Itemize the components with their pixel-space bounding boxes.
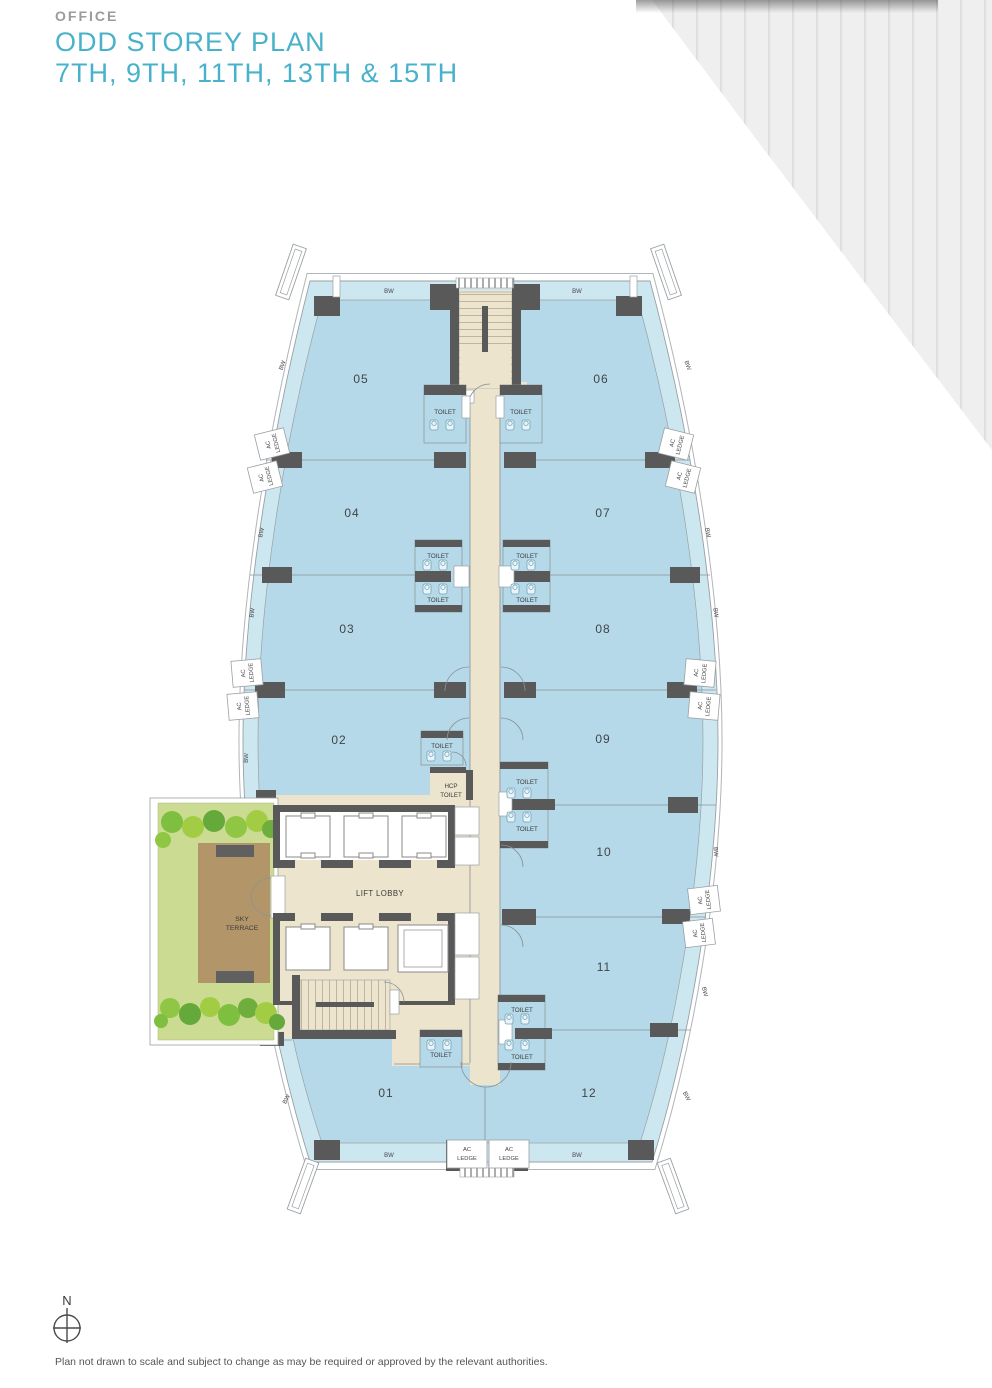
svg-text:BW: BW bbox=[681, 1091, 691, 1103]
fin-top-right bbox=[651, 244, 682, 300]
svg-text:BW: BW bbox=[700, 986, 708, 997]
svg-text:TOILET: TOILET bbox=[516, 826, 538, 833]
category-label: OFFICE bbox=[55, 8, 458, 24]
svg-text:BW: BW bbox=[711, 608, 718, 619]
svg-text:BW: BW bbox=[384, 1153, 394, 1159]
unit-12-label: 12 bbox=[581, 1086, 596, 1100]
floor-plan: AC LEDGE AC LEDGE AC LEDGE AC LEDGE AC L… bbox=[150, 244, 722, 1214]
page-header: OFFICE ODD STOREY PLAN 7TH, 9TH, 11TH, 1… bbox=[55, 8, 458, 89]
unit-03-label: 03 bbox=[339, 622, 354, 636]
svg-text:TOILET: TOILET bbox=[440, 792, 462, 799]
lift-lobby-label: LIFT LOBBY bbox=[356, 889, 404, 898]
fin-bottom-left bbox=[287, 1158, 319, 1214]
fin-bottom-right bbox=[657, 1158, 689, 1214]
lift-bank-upper bbox=[273, 805, 479, 868]
svg-text:AC: AC bbox=[505, 1147, 513, 1153]
floor-plan-canvas: AC LEDGE AC LEDGE AC LEDGE AC LEDGE AC L… bbox=[0, 0, 992, 1388]
terrace-bench-top bbox=[216, 845, 254, 857]
svg-text:AC: AC bbox=[693, 929, 700, 938]
svg-text:BW: BW bbox=[572, 1153, 582, 1159]
svg-text:TOILET: TOILET bbox=[511, 1007, 533, 1014]
unit-06-label: 06 bbox=[593, 372, 608, 386]
svg-text:BW: BW bbox=[244, 753, 250, 763]
hcp-toilet-label: HCP bbox=[444, 783, 457, 790]
unit-10-label: 10 bbox=[596, 845, 611, 859]
north-compass: N bbox=[53, 1293, 81, 1343]
unit-08-label: 08 bbox=[595, 622, 610, 636]
svg-text:TOILET: TOILET bbox=[516, 553, 538, 560]
unit-07-label: 07 bbox=[595, 506, 610, 520]
svg-text:TOILET: TOILET bbox=[516, 597, 538, 604]
corner-stripe-decoration bbox=[636, 0, 992, 450]
svg-text:BW: BW bbox=[249, 607, 256, 618]
bottom-stair bbox=[292, 975, 404, 1039]
svg-text:TOILET: TOILET bbox=[427, 597, 449, 604]
unit-05-label: 05 bbox=[353, 372, 368, 386]
svg-text:BW: BW bbox=[682, 360, 691, 371]
svg-text:AC: AC bbox=[694, 668, 701, 677]
terrace-deck bbox=[198, 843, 270, 983]
unit-11-label: 11 bbox=[597, 960, 611, 974]
svg-text:LEDGE: LEDGE bbox=[499, 1156, 519, 1162]
terrace-door-gap bbox=[271, 876, 285, 918]
unit-02-label: 02 bbox=[331, 733, 346, 747]
svg-text:LEDGE: LEDGE bbox=[457, 1156, 477, 1162]
svg-text:BW: BW bbox=[572, 289, 582, 295]
svg-text:AC: AC bbox=[241, 669, 248, 678]
top-hatch-strip bbox=[456, 278, 514, 288]
svg-text:AC: AC bbox=[698, 701, 705, 710]
svg-text:BW: BW bbox=[712, 847, 719, 857]
terrace-bench-bottom bbox=[216, 971, 254, 983]
north-label: N bbox=[62, 1293, 71, 1308]
svg-text:TERRACE: TERRACE bbox=[226, 925, 259, 932]
unit-01-label: 01 bbox=[378, 1086, 393, 1100]
svg-text:TOILET: TOILET bbox=[427, 553, 449, 560]
bw-label: BW bbox=[384, 289, 394, 295]
sky-terrace-label: SKY bbox=[235, 916, 249, 923]
page-subtitle: 7TH, 9TH, 11TH, 13TH & 15TH bbox=[55, 58, 458, 89]
page-title: ODD STOREY PLAN bbox=[55, 27, 458, 58]
svg-text:TOILET: TOILET bbox=[511, 1054, 533, 1061]
svg-text:TOILET: TOILET bbox=[431, 743, 453, 750]
unit-04-label: 04 bbox=[344, 506, 359, 520]
svg-text:AC: AC bbox=[237, 702, 244, 711]
toilet-label: TOILET bbox=[434, 409, 456, 416]
brochure-page: OFFICE ODD STOREY PLAN 7TH, 9TH, 11TH, 1… bbox=[0, 0, 992, 1388]
unit-09-label: 09 bbox=[595, 732, 610, 746]
svg-text:TOILET: TOILET bbox=[516, 779, 538, 786]
fin-top-left bbox=[276, 244, 307, 300]
svg-text:TOILET: TOILET bbox=[510, 409, 532, 416]
svg-text:TOILET: TOILET bbox=[430, 1052, 452, 1059]
disclaimer-text: Plan not drawn to scale and subject to c… bbox=[55, 1356, 548, 1368]
svg-text:BW: BW bbox=[703, 527, 711, 538]
sky-terrace bbox=[150, 798, 285, 1045]
svg-text:AC: AC bbox=[698, 896, 705, 905]
svg-text:AC: AC bbox=[463, 1147, 471, 1153]
